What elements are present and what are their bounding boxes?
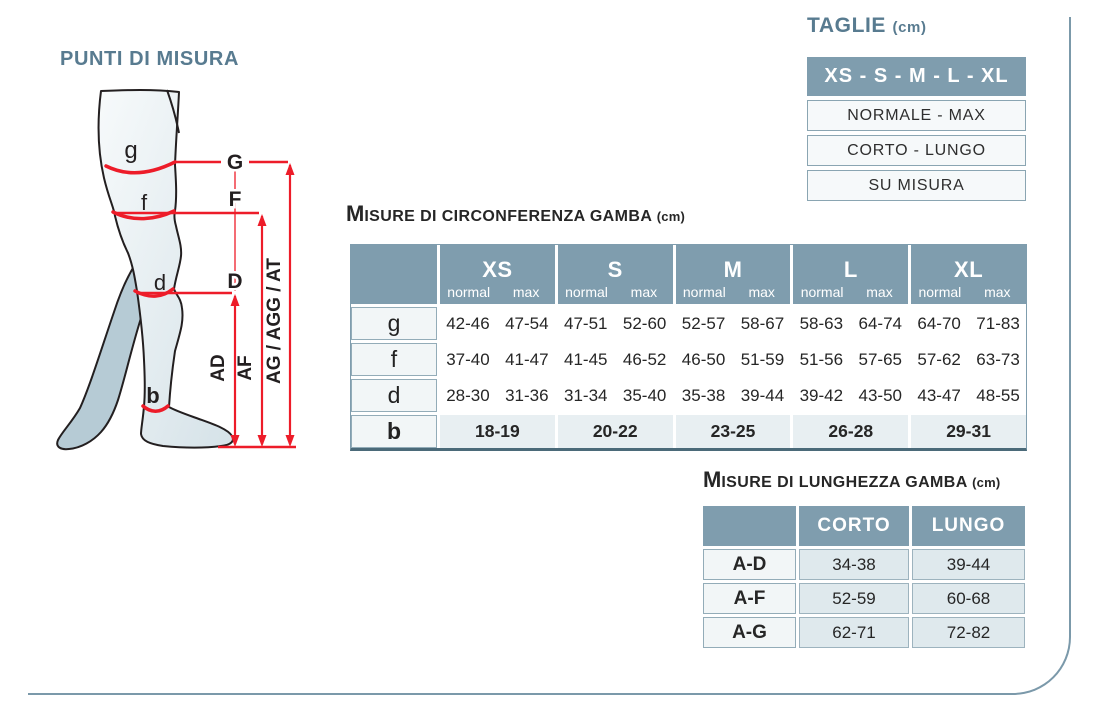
- line-label-G: G: [227, 151, 243, 174]
- taglie-title-unit: (cm): [892, 19, 926, 36]
- length-row-label-ag: A-G: [703, 617, 796, 648]
- length-header-empty-cell: [703, 506, 796, 546]
- size-label: M: [676, 257, 791, 283]
- circ-cell: 51-56: [793, 343, 849, 376]
- circumference-title-unit: (cm): [657, 209, 685, 224]
- circ-cell: 46-52: [617, 343, 673, 376]
- circ-cell: 46-50: [676, 343, 732, 376]
- circ-cell: 47-51: [558, 307, 614, 340]
- length-title-initial: M: [703, 467, 721, 492]
- length-header-lungo: LUNGO: [912, 506, 1025, 546]
- circ-cell: 52-57: [676, 307, 732, 340]
- length-table-title: Misure di lunghezza gamba (cm): [703, 467, 1000, 493]
- circ-header-size-l: L normal max: [793, 245, 908, 304]
- circ-cell: 57-62: [911, 343, 967, 376]
- subcol-max: max: [497, 284, 554, 300]
- circ-row-label-g: g: [351, 307, 437, 340]
- circ-cell: 31-34: [558, 379, 614, 412]
- arrow-label-AD: AD: [208, 354, 229, 381]
- length-cell: 52-59: [799, 583, 909, 614]
- circ-cell: 64-74: [852, 307, 908, 340]
- circ-cell-ankle: 18-19: [440, 415, 555, 448]
- subcol-normal: normal: [793, 284, 850, 300]
- circ-cell: 63-73: [970, 343, 1026, 376]
- circ-cell: 58-63: [793, 307, 849, 340]
- circ-cell: 57-65: [852, 343, 908, 376]
- circ-cell: 64-70: [911, 307, 967, 340]
- circ-cell-ankle: 23-25: [676, 415, 791, 448]
- circ-cell: 71-83: [970, 307, 1026, 340]
- circ-cell: 52-60: [617, 307, 673, 340]
- circ-cell: 42-46: [440, 307, 496, 340]
- taglie-title-text: TAGLIE: [807, 14, 886, 37]
- ad-up-arrowhead: [231, 294, 240, 306]
- circ-cell: 39-42: [793, 379, 849, 412]
- taglie-option-corto-lungo: CORTO - LUNGO: [807, 135, 1026, 166]
- subcol-max: max: [733, 284, 790, 300]
- circ-cell: 35-38: [676, 379, 732, 412]
- circ-cell: 51-59: [735, 343, 791, 376]
- taglie-sizes-header: XS - S - M - L - XL: [807, 57, 1026, 96]
- subcol-normal: normal: [911, 284, 968, 300]
- size-label: S: [558, 257, 673, 283]
- line-label-F: F: [229, 188, 242, 211]
- point-label-f: f: [141, 190, 148, 215]
- circ-cell: 41-47: [499, 343, 555, 376]
- circ-cell-ankle: 26-28: [793, 415, 908, 448]
- circ-cell: 43-50: [852, 379, 908, 412]
- circ-header-size-xs: XS normal max: [440, 245, 555, 304]
- point-label-g: g: [124, 137, 137, 164]
- arrow-label-AF: AF: [235, 355, 256, 380]
- length-header-corto: CORTO: [799, 506, 909, 546]
- circumference-title-initial: M: [346, 201, 364, 226]
- circ-cell: 31-36: [499, 379, 555, 412]
- circ-cell: 48-55: [970, 379, 1026, 412]
- length-row-label-ad: A-D: [703, 549, 796, 580]
- circ-header-size-s: S normal max: [558, 245, 673, 304]
- circumference-table: XS normal max S normal max M normal max …: [350, 244, 1027, 451]
- af-up-arrowhead: [258, 214, 267, 226]
- size-label: L: [793, 257, 908, 283]
- circ-header-empty-cell: [351, 245, 437, 304]
- circ-header-size-m: M normal max: [676, 245, 791, 304]
- length-cell: 34-38: [799, 549, 909, 580]
- circ-row-label-b: b: [351, 415, 437, 448]
- taglie-option-su-misura: SU MISURA: [807, 170, 1026, 201]
- circ-row-label-f: f: [351, 343, 437, 376]
- subcol-normal: normal: [440, 284, 497, 300]
- taglie-title: TAGLIE (cm): [807, 14, 927, 38]
- taglie-table: XS - S - M - L - XL NORMALE - MAX CORTO …: [807, 57, 1026, 201]
- circumference-table-title: Misure di circonferenza gamba (cm): [346, 201, 685, 227]
- circ-cell: 35-40: [617, 379, 673, 412]
- sizing-chart-page: PUNTI DI MISURA: [0, 0, 1093, 717]
- circ-header-size-xl: XL normal max: [911, 245, 1026, 304]
- af-down-arrowhead: [258, 435, 267, 447]
- circ-cell: 28-30: [440, 379, 496, 412]
- length-cell: 60-68: [912, 583, 1025, 614]
- circ-cell: 39-44: [735, 379, 791, 412]
- subcol-max: max: [969, 284, 1026, 300]
- size-label: XL: [911, 257, 1026, 283]
- circumference-title-rest: isure di circonferenza gamba: [364, 208, 652, 225]
- circ-cell-ankle: 20-22: [558, 415, 673, 448]
- subcol-normal: normal: [676, 284, 733, 300]
- subcol-max: max: [615, 284, 672, 300]
- arrow-label-AG-AGG-AT: AG / AGG / AT: [264, 258, 285, 384]
- circ-cell: 37-40: [440, 343, 496, 376]
- size-label: XS: [440, 257, 555, 283]
- circ-cell: 58-67: [735, 307, 791, 340]
- taglie-option-normale-max: NORMALE - MAX: [807, 100, 1026, 131]
- length-cell: 62-71: [799, 617, 909, 648]
- length-cell: 39-44: [912, 549, 1025, 580]
- measure-points-title: PUNTI DI MISURA: [60, 48, 239, 71]
- circ-cell-ankle: 29-31: [911, 415, 1026, 448]
- subcol-max: max: [851, 284, 908, 300]
- length-title-rest: isure di lunghezza gamba: [721, 474, 967, 491]
- leg-measurement-diagram: g f d b G F D AD AF AG / AGG / AT: [55, 80, 310, 465]
- circ-cell: 41-45: [558, 343, 614, 376]
- length-cell: 72-82: [912, 617, 1025, 648]
- ag-down-arrowhead: [286, 435, 295, 447]
- point-label-b: b: [146, 383, 159, 408]
- line-label-D: D: [227, 270, 242, 293]
- length-title-unit: (cm): [972, 475, 1000, 490]
- subcol-normal: normal: [558, 284, 615, 300]
- circ-cell: 47-54: [499, 307, 555, 340]
- point-label-d: d: [154, 270, 166, 295]
- circ-row-label-d: d: [351, 379, 437, 412]
- circ-cell: 43-47: [911, 379, 967, 412]
- ag-up-arrowhead: [286, 163, 295, 175]
- length-table: CORTO LUNGO A-D 34-38 39-44 A-F 52-59 60…: [703, 506, 1025, 648]
- length-row-label-af: A-F: [703, 583, 796, 614]
